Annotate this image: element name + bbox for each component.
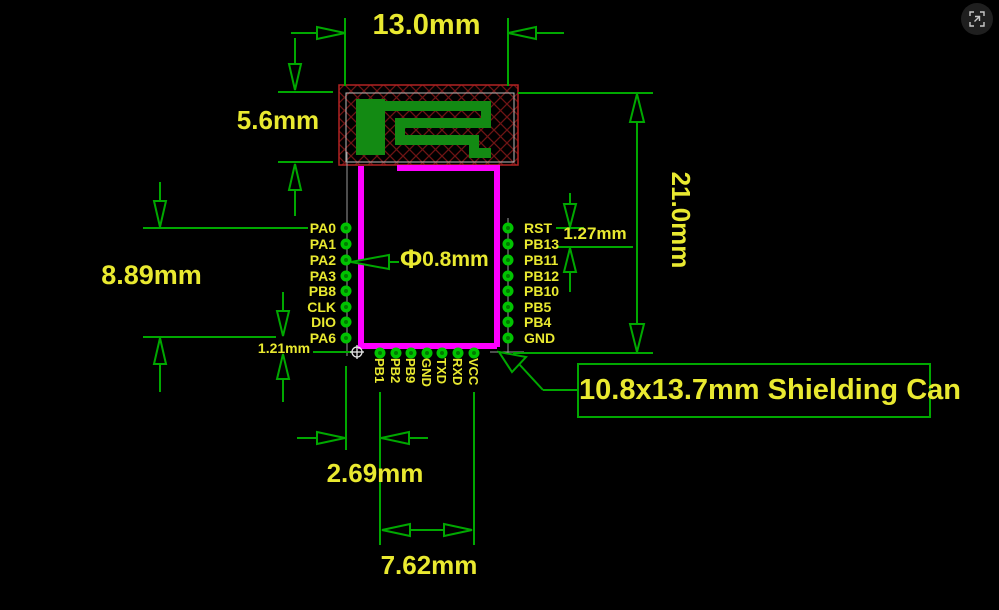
dimension-label-bottom-pin-span: 7.62mm (374, 552, 484, 579)
drawing-canvas (0, 0, 999, 610)
pin-label-bottom-3: PB9 (404, 358, 418, 383)
fullscreen-expand-icon (969, 11, 985, 27)
pin-label-right-3: PB11 (524, 252, 558, 268)
dimension-label-right-pin-pitch: 1.27mm (555, 225, 635, 243)
pin-label-bottom-1: PB1 (373, 358, 387, 383)
dimension-label-pad-diameter: Φ0.8mm (400, 245, 489, 273)
pin-label-right-1: RST (524, 220, 552, 236)
pin-label-right-7: PB4 (524, 314, 551, 330)
dimension-label-antenna-height: 5.6mm (228, 107, 328, 134)
pin-label-left-7: DIO (288, 314, 336, 330)
pin-label-left-8: PA6 (288, 330, 336, 346)
dimension-label-left-pin-span: 8.89mm (94, 261, 209, 289)
pad-diameter-value: 0.8mm (422, 248, 489, 271)
pin-label-bottom-6: RXD (451, 358, 465, 385)
dimension-label-bottom-first-pin-offset: 2.69mm (320, 460, 430, 487)
pin-label-left-3: PA2 (288, 252, 336, 268)
pin-label-left-1: PA0 (288, 220, 336, 236)
pin-label-right-2: PB13 (524, 236, 559, 252)
pin-label-bottom-2: PB2 (389, 358, 403, 383)
pin-label-bottom-7: VCC (467, 358, 481, 385)
pin-label-bottom-4: GND (420, 358, 434, 387)
pin-label-right-4: PB12 (524, 268, 559, 284)
pin-label-left-6: CLK (288, 299, 336, 315)
dimension-label-overall-height: 21.0mm (664, 170, 694, 270)
shielding-can-label: 10.8x13.7mm Shielding Can (577, 363, 931, 418)
pin-label-right-6: PB5 (524, 299, 551, 315)
pin-label-left-5: PB8 (288, 283, 336, 299)
phi-symbol: Φ (400, 244, 422, 274)
pin-label-right-8: GND (524, 330, 555, 346)
pin-label-left-4: PA3 (288, 268, 336, 284)
pad-array-left (341, 223, 352, 344)
dimension-label-top-width: 13.0mm (345, 10, 508, 40)
pin-label-bottom-5: TXD (435, 358, 449, 384)
pad-array-bottom (375, 348, 480, 359)
fullscreen-expand-button[interactable] (961, 3, 993, 35)
pin-label-right-5: PB10 (524, 283, 559, 299)
pcb-dimension-drawing: 13.0mm 5.6mm 8.89mm 1.21mm 1.27mm 21.0mm… (0, 0, 999, 610)
pin-label-left-2: PA1 (288, 236, 336, 252)
